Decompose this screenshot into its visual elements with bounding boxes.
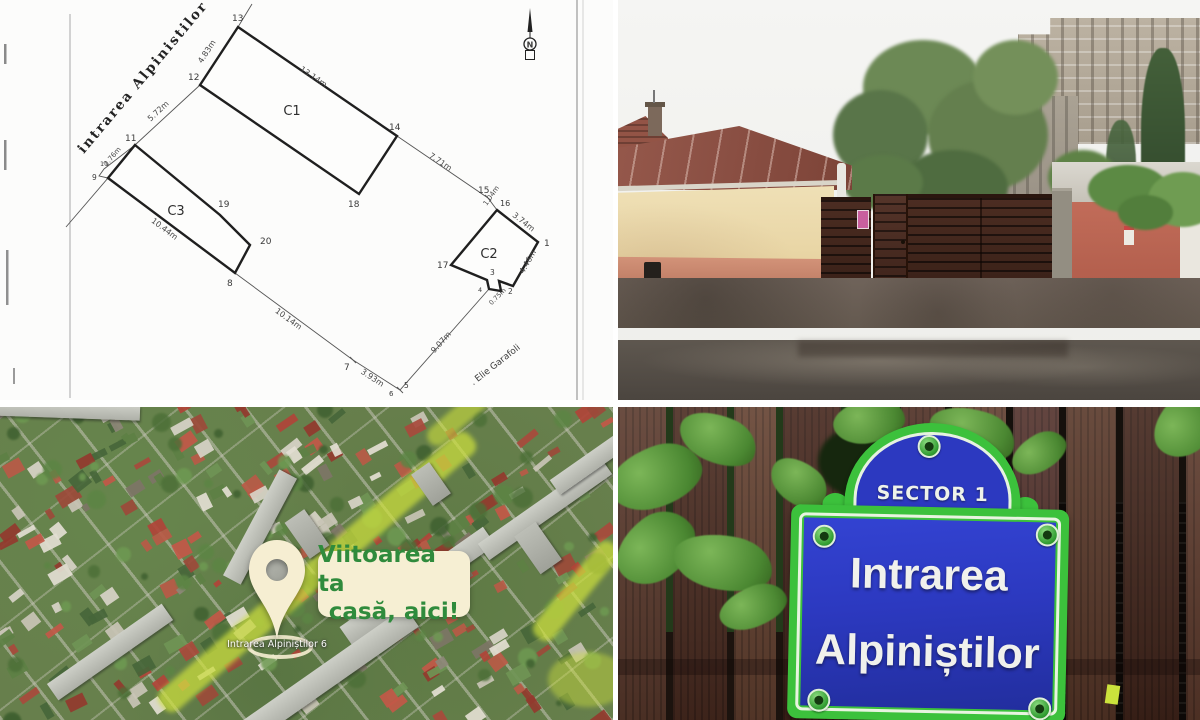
map-house — [525, 695, 541, 713]
map-house — [177, 407, 191, 413]
map-house — [276, 413, 298, 431]
point-17: 17 — [437, 261, 448, 271]
map-house — [141, 539, 153, 552]
map-house — [462, 463, 476, 480]
yellow-sticker — [1105, 684, 1121, 705]
gate-notice-sign — [857, 210, 869, 229]
tree-foliage — [973, 40, 1058, 115]
map-tree — [152, 413, 171, 432]
map-tree — [564, 542, 574, 552]
point-5: 5 — [404, 381, 409, 390]
point-4: 4 — [478, 286, 482, 294]
map-house — [516, 429, 538, 448]
map-tree — [400, 451, 417, 468]
wood-driveway-gate — [908, 194, 1052, 287]
sign-street-line2: Alpiniștilor — [815, 629, 1040, 677]
map-tree — [141, 573, 148, 580]
map-house — [370, 471, 382, 481]
map-house — [187, 531, 201, 544]
dim-9-07: 9.07m — [429, 330, 453, 355]
map-tree — [415, 630, 426, 641]
map-house — [433, 710, 449, 720]
map-tree — [600, 607, 608, 615]
screw-icon — [1028, 697, 1051, 720]
vine-foliage — [1118, 195, 1173, 230]
boundary-line-ne — [397, 136, 497, 210]
small-wall-sign — [1124, 226, 1134, 245]
promo-ribbon: Viitoarea ta casă, aici! — [318, 551, 470, 617]
map-house — [465, 624, 475, 633]
point-19: 19 — [218, 200, 230, 210]
map-house — [134, 457, 151, 469]
scan-noise — [13, 368, 15, 384]
scan-noise — [6, 250, 9, 305]
map-house — [11, 506, 25, 521]
point-3: 3 — [490, 268, 495, 277]
aerial-map-quadrant: Viitoarea ta casă, aici! Intrarea Alpini… — [0, 407, 613, 720]
map-tree — [520, 451, 533, 464]
map-tree — [3, 712, 21, 720]
point-11: 11 — [125, 134, 136, 144]
map-tree — [554, 410, 572, 428]
point-12: 12 — [188, 73, 199, 83]
map-tree — [88, 565, 100, 577]
map-house — [206, 462, 223, 478]
map-house — [8, 588, 24, 603]
map-house — [404, 509, 424, 524]
map-house — [222, 486, 233, 498]
cadastral-plan-drawing: C1 C3 C2 13 12 11 10 9 14 18 15 16 1 17 … — [0, 0, 613, 400]
map-house — [125, 479, 145, 497]
map-tree — [43, 460, 62, 479]
gate-reflection — [798, 341, 1068, 357]
map-house — [121, 499, 138, 515]
map-tree — [79, 473, 87, 481]
map-tree — [214, 429, 223, 438]
map-tree — [194, 607, 209, 622]
map-house — [102, 475, 115, 486]
map-house — [71, 634, 92, 653]
map-tree — [330, 497, 345, 512]
gate-handle — [901, 240, 905, 244]
map-tree — [8, 657, 23, 672]
map-house — [8, 644, 19, 655]
point-2: 2 — [508, 287, 513, 296]
dim-3-93: 3.93m — [359, 367, 386, 389]
map-house — [45, 623, 63, 638]
point-14: 14 — [389, 123, 401, 133]
street-name-sign: SECTOR 1 Intrarea Alpiniștilor — [780, 420, 1078, 720]
map-house — [431, 685, 445, 697]
map-house — [600, 417, 613, 428]
point-9: 9 — [92, 173, 97, 182]
sidewalk — [618, 278, 1200, 328]
wood-pedestrian-door — [873, 194, 908, 280]
map-house — [130, 682, 148, 699]
map-house — [532, 455, 551, 472]
dim-5-72: 5.72m — [146, 99, 171, 123]
map-house — [494, 504, 510, 520]
sign-sector-text: SECTOR 1 — [876, 482, 989, 506]
map-house — [20, 611, 40, 631]
concrete-pillar — [1052, 188, 1072, 288]
map-house — [487, 652, 508, 673]
map-tree — [233, 490, 241, 498]
map-house — [578, 602, 596, 616]
dim-7-71: 7.71m — [427, 151, 453, 173]
map-house — [213, 580, 222, 588]
map-tree — [90, 462, 99, 471]
map-house — [299, 444, 317, 458]
map-tree — [116, 547, 131, 562]
map-house — [366, 440, 387, 454]
point-16: 16 — [500, 199, 510, 208]
map-tree — [61, 601, 71, 611]
street-sign-quadrant: SECTOR 1 Intrarea Alpiniștilor — [618, 407, 1200, 720]
map-tree — [319, 445, 328, 454]
north-letter: N — [527, 41, 534, 50]
map-tree — [433, 632, 443, 642]
location-pin-icon — [246, 538, 308, 643]
map-tree — [278, 455, 292, 469]
chimney — [648, 106, 662, 136]
map-house — [317, 464, 333, 482]
frontage-line — [135, 85, 200, 145]
floor-plan-quadrant: C1 C3 C2 13 12 11 10 9 14 18 15 16 1 17 … — [0, 0, 613, 400]
street-photo-quadrant — [618, 0, 1200, 400]
map-tree — [165, 666, 175, 676]
map-house — [535, 644, 551, 657]
point-20: 20 — [260, 237, 272, 247]
point-8: 8 — [227, 279, 233, 289]
map-tree — [526, 659, 535, 668]
map-street-label: Intrarea Alpiniștilor 6 — [222, 639, 332, 650]
real-estate-collage: C1 C3 C2 13 12 11 10 9 14 18 15 16 1 17 … — [0, 0, 1200, 720]
map-tree — [478, 669, 491, 682]
map-tree — [87, 490, 106, 509]
map-tree — [7, 427, 20, 440]
map-house — [39, 702, 54, 719]
map-house — [65, 693, 88, 713]
building-c1-label: C1 — [283, 104, 300, 119]
sign-blue-field: Intrarea Alpiniștilor — [800, 517, 1056, 710]
map-tree — [176, 575, 191, 590]
map-house — [494, 580, 508, 593]
map-house — [195, 573, 206, 585]
promo-ribbon-line1: Viitoarea ta — [318, 541, 470, 599]
map-house — [88, 608, 109, 625]
dim-10-14: 10.14m — [273, 306, 303, 331]
map-tree — [430, 517, 449, 536]
side-street-name-label: . Elie Garafoli — [469, 343, 523, 388]
map-tree — [556, 700, 562, 706]
map-house — [517, 559, 530, 574]
map-house — [519, 468, 529, 476]
map-tree — [44, 562, 51, 569]
point-1: 1 — [544, 239, 550, 249]
map-tree — [198, 544, 215, 561]
vertex-ticks — [350, 195, 491, 393]
map-house — [491, 471, 508, 486]
map-tree — [176, 468, 192, 484]
promo-ribbon-line2: casă, aici! — [329, 598, 460, 627]
map-house — [404, 419, 426, 438]
map-house — [132, 655, 156, 677]
building-c2-label: C2 — [480, 247, 497, 262]
point-6: 6 — [389, 390, 394, 398]
scan-noise — [4, 44, 7, 64]
scan-noise — [4, 140, 7, 170]
point-7: 7 — [344, 363, 350, 373]
map-house — [45, 508, 56, 520]
point-18: 18 — [348, 200, 360, 210]
map-house — [465, 706, 486, 720]
point-13: 13 — [232, 14, 243, 24]
map-house — [303, 420, 321, 437]
map-house — [19, 686, 41, 704]
map-tree — [512, 487, 533, 508]
map-tree — [494, 485, 514, 505]
map-tree — [199, 562, 208, 571]
sign-street-line1: Intrarea — [850, 552, 1009, 598]
map-house — [588, 709, 612, 720]
map-tree — [588, 533, 597, 542]
map-tree — [204, 479, 214, 489]
north-arrow-icon: N — [524, 8, 536, 60]
building-c3-label: C3 — [167, 204, 184, 219]
